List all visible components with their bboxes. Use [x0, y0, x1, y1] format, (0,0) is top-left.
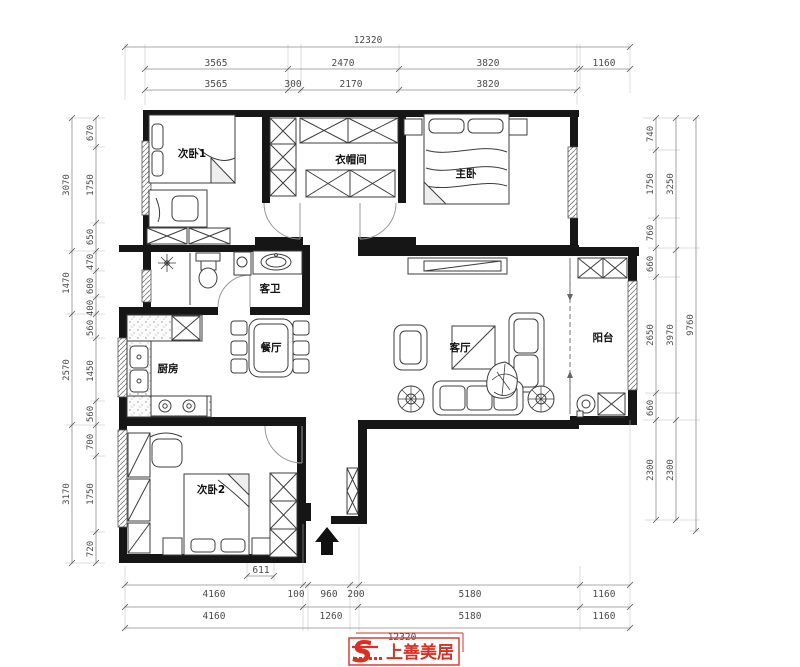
dim-left: 670	[86, 125, 96, 141]
dim-right: 2650	[646, 324, 656, 346]
shoe-cabinet	[347, 468, 358, 514]
dim-left: 600	[86, 278, 96, 294]
dim-left: 3070	[62, 174, 72, 196]
dim-bottom: 4160	[203, 611, 226, 622]
room-label-bedroom1: 次卧1	[178, 147, 206, 160]
dim-bottom: 1160	[593, 589, 616, 600]
dim-right: 660	[646, 400, 656, 416]
sink-counter	[253, 251, 302, 274]
room-label-master-bedroom: 主卧	[456, 167, 477, 180]
dim-top: 3565	[205, 58, 228, 69]
door-guest-bath	[218, 275, 250, 307]
guest-bathroom-fixtures	[158, 251, 302, 305]
window-balcony	[628, 281, 637, 390]
dim-right: 740	[646, 126, 656, 142]
dim-right: 2300	[646, 459, 656, 481]
window-master	[568, 147, 577, 218]
dim-left: 470	[86, 254, 96, 270]
dim-right-overall: 9760	[686, 314, 696, 336]
floor-plan-page: 12320 3565 2470 3820 1160 3565 300 2170 …	[0, 0, 800, 667]
dim-left: 1750	[86, 483, 96, 505]
wardrobe-bedroom2	[270, 473, 297, 557]
dimension-text-left: 3070 1470 2570 3170 670 1750 650 470 600…	[62, 125, 96, 557]
door-bedroom2	[265, 426, 302, 463]
dim-left: 400	[86, 300, 96, 316]
logo-brand-text: 上善美居	[386, 642, 454, 663]
door-cloakroom-left	[264, 203, 300, 239]
balcony-cabinet	[578, 258, 627, 278]
room-label-bedroom2: 次卧2	[197, 483, 225, 496]
dim-bottom: 5180	[459, 589, 482, 600]
room-label-living-room: 客厅	[449, 341, 471, 354]
dim-right: 2300	[666, 459, 676, 481]
room-labels: 次卧1 衣帽间 主卧 客卫 厨房 餐厅 客厅 阳台 次卧2	[158, 147, 614, 496]
fridge	[172, 316, 200, 340]
dim-detail: 611	[252, 565, 269, 576]
floor-lamp-right	[528, 386, 554, 412]
north-arrow-icon	[315, 527, 339, 555]
stove	[151, 396, 207, 416]
dim-left: 560	[86, 320, 96, 336]
dim-left: 1750	[86, 174, 96, 196]
dim-top: 1160	[593, 58, 616, 69]
desk-bedroom1	[149, 190, 207, 227]
window-guest-bath	[142, 270, 151, 302]
bed-master	[404, 114, 527, 204]
dim-right: 3250	[666, 173, 676, 195]
dim-top: 2170	[340, 79, 363, 90]
dimension-text-right: 740 1750 760 660 2650 660 2300 3250 3970…	[646, 126, 696, 481]
dim-right: 3970	[666, 324, 676, 346]
dim-bottom: 1260	[320, 611, 343, 622]
dim-left: 3170	[62, 483, 72, 505]
room-label-dining-room: 餐厅	[260, 341, 282, 354]
floor-lamp-left	[398, 386, 424, 412]
wardrobe-cloakroom-tall	[270, 118, 296, 196]
dim-top: 3820	[477, 58, 500, 69]
dim-right: 1750	[646, 173, 656, 195]
dimension-text-top: 12320 3565 2470 3820 1160 3565 300 2170 …	[205, 35, 616, 90]
mop-basin	[577, 395, 595, 417]
floor-drain-icon	[158, 254, 176, 272]
dim-left: 700	[86, 434, 96, 450]
bedroom2-cabinets	[128, 433, 150, 553]
dim-bottom: 1160	[593, 611, 616, 622]
room-label-guest-bathroom: 客卫	[259, 282, 281, 295]
cabinet-bedroom1	[147, 228, 230, 244]
room-label-balcony: 阳台	[593, 331, 614, 344]
wardrobe-cloakroom-bottom	[306, 170, 395, 197]
dim-bottom: 200	[347, 589, 364, 600]
sliding-door-balcony	[567, 258, 573, 414]
dimension-text-bottom: 4160 100 960 200 5180 1160 4160 1260 518…	[203, 565, 616, 643]
brand-logo: S 上善美居	[349, 633, 463, 667]
dim-bottom: 4160	[203, 589, 226, 600]
dim-top-overall: 12320	[354, 35, 383, 46]
dim-left: 720	[86, 541, 96, 557]
dim-top: 3565	[205, 79, 228, 90]
window-bedroom2	[118, 430, 127, 527]
toilet	[196, 253, 220, 288]
dim-bottom: 5180	[459, 611, 482, 622]
dim-left: 1450	[86, 360, 96, 382]
dim-bottom: 100	[287, 589, 304, 600]
dim-right: 760	[646, 225, 656, 241]
window-kitchen	[118, 338, 127, 397]
dim-left: 560	[86, 406, 96, 422]
dim-top: 300	[284, 79, 301, 90]
dim-left: 650	[86, 229, 96, 245]
logo-mark: S	[352, 635, 373, 667]
floor-plan-canvas: 12320 3565 2470 3820 1160 3565 300 2170 …	[0, 0, 800, 667]
dim-right: 660	[646, 256, 656, 272]
wardrobe-cloakroom-top	[300, 118, 398, 143]
door-master	[360, 203, 396, 239]
desk-bedroom2	[150, 433, 182, 467]
tv-stand	[408, 258, 507, 274]
dim-bottom: 960	[320, 589, 337, 600]
bath-cabinet	[234, 252, 251, 275]
dim-left: 2570	[62, 359, 72, 381]
room-label-cloakroom: 衣帽间	[335, 153, 367, 166]
dim-top: 2470	[332, 58, 355, 69]
washing-machine	[598, 393, 625, 417]
room-label-kitchen: 厨房	[158, 362, 179, 375]
dim-left: 1470	[62, 272, 72, 294]
dim-top: 3820	[477, 79, 500, 90]
